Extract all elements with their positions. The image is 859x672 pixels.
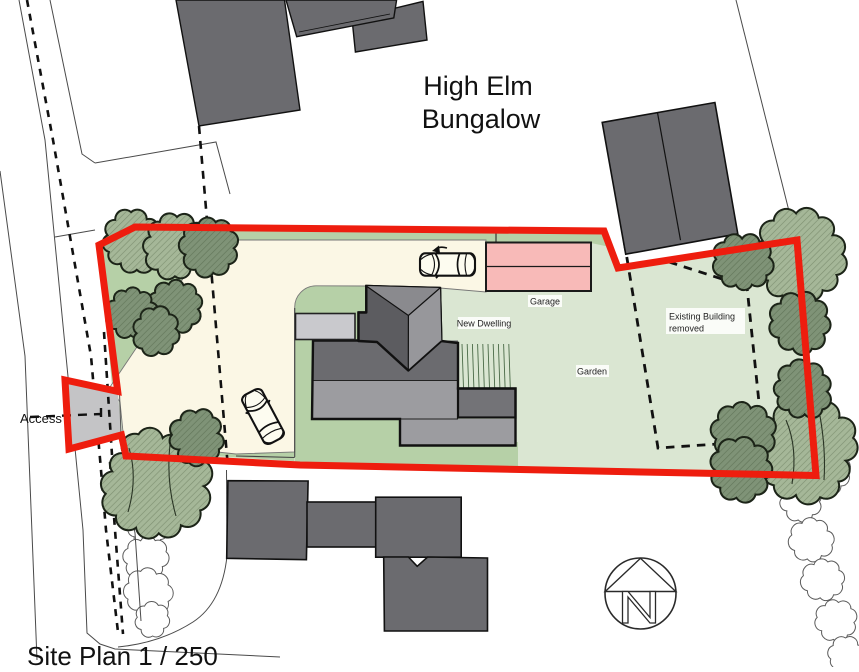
svg-text:Bungalow: Bungalow bbox=[422, 104, 541, 134]
svg-text:Garage: Garage bbox=[530, 297, 560, 307]
svg-text:Existing Building: Existing Building bbox=[669, 312, 735, 322]
svg-text:Access: Access bbox=[20, 411, 62, 426]
svg-text:Site Plan 1 / 250: Site Plan 1 / 250 bbox=[27, 641, 218, 667]
svg-text:New Dwelling: New Dwelling bbox=[457, 319, 512, 329]
svg-text:High Elm: High Elm bbox=[423, 71, 533, 101]
svg-text:removed: removed bbox=[669, 324, 704, 334]
svg-text:Garden: Garden bbox=[577, 367, 607, 377]
